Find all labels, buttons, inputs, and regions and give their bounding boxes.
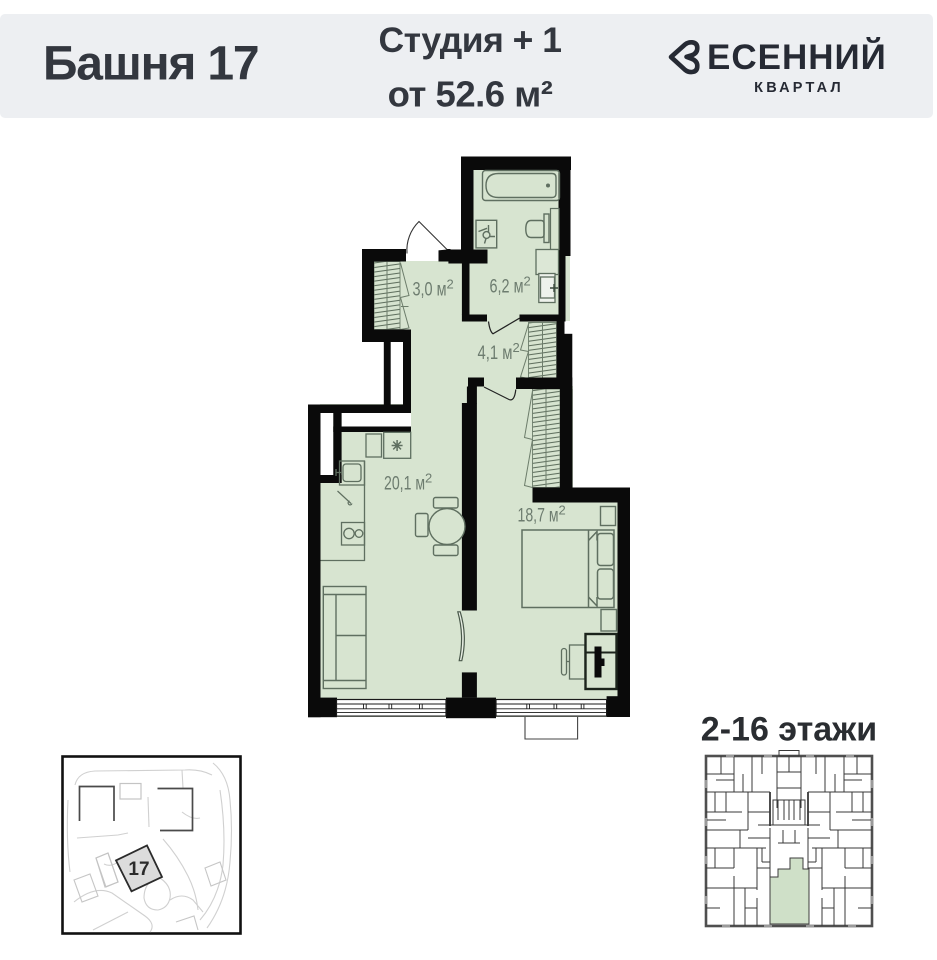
svg-text:КВАРТАЛ: КВАРТАЛ [754,80,844,96]
svg-text:Студия + 1: Студия + 1 [378,20,561,60]
svg-text:от 52.6 м²: от 52.6 м² [388,74,553,115]
svg-text:2-16 этажи: 2-16 этажи [701,711,877,749]
svg-text:18,7 м2: 18,7 м2 [518,503,566,527]
svg-text:ЕСЕННИЙ: ЕСЕННИЙ [707,37,887,77]
svg-text:20,1 м2: 20,1 м2 [384,471,432,495]
svg-text:17: 17 [128,859,149,880]
svg-text:Башня 17: Башня 17 [43,38,258,91]
